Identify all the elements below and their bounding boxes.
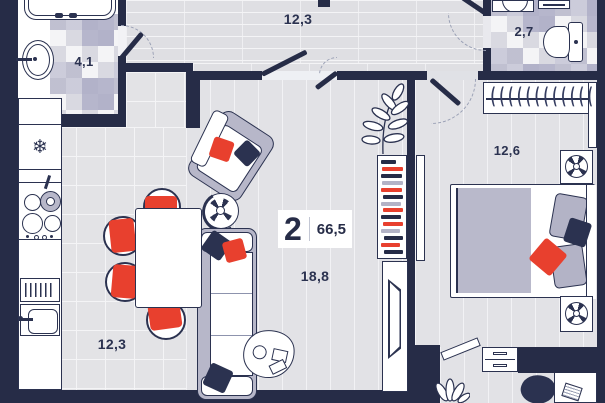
stove-knob-2	[34, 235, 39, 240]
rooms-count: 2	[284, 213, 302, 245]
stove-knob-1	[26, 235, 29, 238]
bathroom-tap-knob	[33, 57, 37, 61]
bathroom-area-label: 4,1	[64, 54, 104, 69]
wc-sink	[538, 0, 570, 9]
bookshelf	[377, 155, 407, 259]
kitchen-sink	[20, 304, 60, 336]
burner-1	[24, 194, 41, 211]
nightstand-bottom	[560, 296, 593, 332]
dish-rack-slats	[25, 283, 55, 297]
kitchen-faucet-knob	[18, 316, 23, 321]
dining-table	[135, 208, 202, 308]
total-area: 66,5	[317, 221, 346, 238]
dish-rack	[20, 278, 60, 302]
dining-chair	[108, 218, 136, 253]
plant-icon	[356, 80, 410, 158]
bed	[450, 184, 595, 298]
badge-divider	[309, 217, 310, 241]
plant-small-icon	[430, 378, 470, 403]
washing-machine	[492, 0, 534, 12]
desk-papers	[561, 383, 582, 402]
dresser-handle	[493, 364, 507, 367]
sofa-seam	[211, 293, 252, 294]
burner-3	[22, 213, 43, 234]
sofa	[197, 228, 257, 400]
nightstand-decor-hub	[573, 310, 580, 317]
tv-screen	[390, 282, 400, 356]
bedroom-shelf	[416, 155, 425, 261]
wc-area-label: 2,7	[504, 24, 544, 39]
nightstand-decor-hub	[573, 163, 580, 170]
kitchen-area-label: 12,3	[90, 336, 134, 352]
bookshelf-books	[381, 160, 403, 254]
floor-fan	[203, 193, 239, 229]
wall-kitchen-living-stub	[186, 71, 200, 128]
wall-entry-stub	[318, 0, 330, 7]
stove-knob-3	[42, 235, 47, 240]
toilet-bowl	[543, 26, 570, 58]
pan-center	[46, 197, 55, 206]
washer-drum	[502, 0, 528, 12]
stove	[18, 182, 62, 240]
bed-headboard	[586, 185, 596, 299]
bathtub-faucet	[55, 13, 63, 18]
dresser-handle	[493, 352, 507, 355]
wall-bedroom-bottom-right	[518, 347, 597, 373]
snowflake-icon: ❄	[32, 136, 48, 158]
fan-hub	[216, 206, 225, 215]
bathtub-faucet2	[69, 13, 77, 18]
stove-knob-4	[50, 235, 53, 238]
table-book2	[268, 359, 287, 375]
dresser-divider	[485, 359, 515, 360]
desk	[554, 372, 597, 403]
burner-4	[44, 215, 61, 232]
living-area-label: 18,8	[293, 268, 337, 284]
wc-sink-line	[543, 4, 565, 6]
hallway-floor-lower	[193, 63, 483, 71]
coffee-cup	[252, 344, 268, 360]
hallway-area-label: 12,3	[276, 11, 320, 27]
burner-pan	[40, 191, 61, 212]
bedroom-area-label: 12,6	[487, 143, 527, 158]
kitchen-floor-upper	[126, 72, 186, 127]
toilet-button	[574, 40, 578, 44]
bed-blanket	[456, 188, 533, 293]
fridge: ❄	[18, 124, 62, 170]
nightstand-top	[560, 150, 593, 184]
bathroom-tap	[16, 58, 32, 61]
floorplan: ❄	[0, 0, 605, 403]
sofa-seam	[211, 335, 252, 336]
apartment-badge: 2 66,5	[278, 210, 352, 248]
kitchen-sink-basin	[28, 309, 58, 334]
wardrobe-hangers-icon: (((((((((((( (((	[489, 85, 605, 111]
bathtub	[24, 0, 116, 20]
wall-bedroom-bottom-left	[415, 345, 440, 375]
dresser	[482, 347, 518, 372]
